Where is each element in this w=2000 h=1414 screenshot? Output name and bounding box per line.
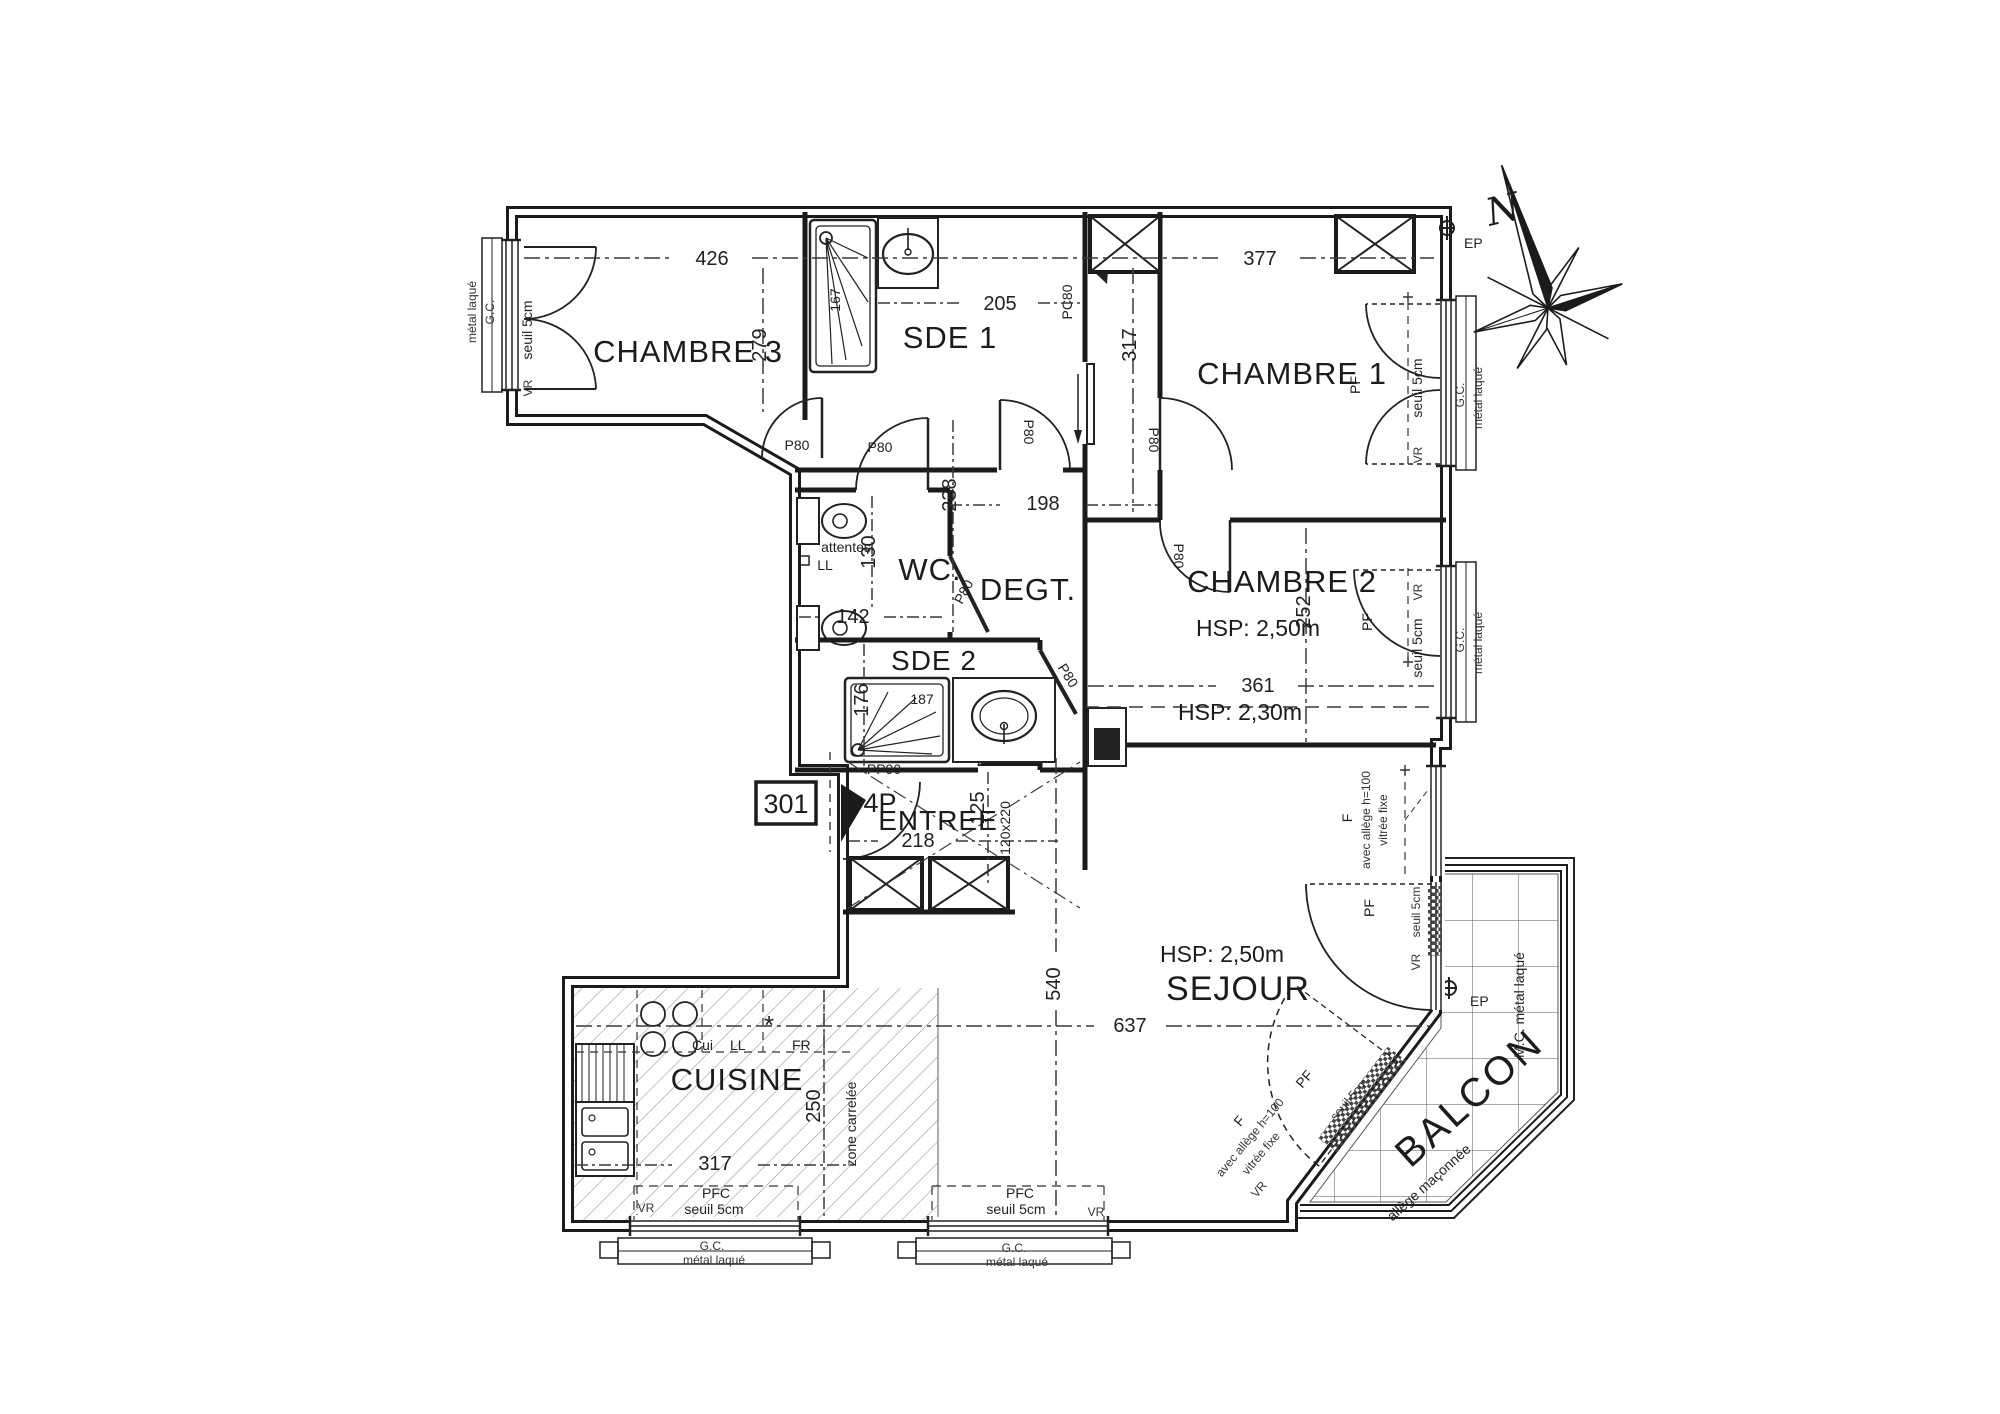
seuil-label: seuil 5cm (986, 1201, 1045, 1217)
metal-laque-label: métal laqué (1471, 367, 1485, 429)
entree-label: ENTREE (878, 805, 998, 836)
p80-label: P80 (868, 439, 893, 455)
degt-label: DEGT. (980, 572, 1076, 607)
wc-label: WC. (898, 552, 961, 587)
sejour-label: SEJOUR (1166, 970, 1310, 1008)
trap-dim-label: 120x220 (997, 801, 1013, 855)
floor-plan-page: BALCON allège maçonnée M.C. métal laqué … (0, 0, 2000, 1414)
gc-label: G.C. (483, 300, 497, 325)
dim-chambre1-w: 377 (1243, 248, 1276, 270)
vr-label: VR (521, 379, 535, 396)
gc-label: G.C. (1453, 383, 1467, 408)
ep-balcony-label: EP (1470, 993, 1489, 1009)
washbasin-sde2 (953, 678, 1055, 762)
closet-1 (850, 858, 922, 910)
vr-label: VR (638, 1201, 655, 1215)
dim-wc-h: 130 (858, 535, 880, 568)
window-sejour-fixed: F avec allège h=100 vitrée fixe (1339, 765, 1446, 876)
sejour-hsp: HSP: 2,50m (1160, 941, 1284, 967)
sde1-label: SDE 1 (903, 320, 998, 355)
dim-chambre3-w: 426 (695, 248, 728, 270)
vr-label: VR (1409, 953, 1423, 970)
shower-dim-label: 167 (827, 288, 843, 312)
kitchen-sink (576, 1044, 634, 1176)
window-chambre3: seuil 5cm VR G.C. métal laqué (465, 238, 596, 396)
vr-label: VR (1411, 583, 1425, 600)
pfc-label: PFC (1006, 1185, 1034, 1201)
pp90-label: PP90 (867, 761, 901, 777)
metal-laque-label: métal laqué (465, 281, 479, 343)
sde2-label: SDE 2 (891, 645, 977, 676)
shower-sde1: 167 (810, 220, 876, 372)
chambre3-label: CHAMBRE 3 (593, 334, 783, 369)
cuisine-label: CUISINE (671, 1062, 804, 1097)
door-chambre1: P80 (1146, 398, 1232, 470)
p80-label: P80 (785, 437, 810, 453)
p80-label: P80 (1021, 420, 1037, 445)
seuil-label: seuil 5cm (684, 1201, 743, 1217)
gc-label: G.C. (1002, 1241, 1027, 1255)
glazing-band (1428, 886, 1442, 956)
apartment-number-box: 301 (756, 782, 816, 824)
gaine-box-2 (1336, 216, 1414, 272)
pfc-label: PFC (702, 1185, 730, 1201)
seuil-label: seuil 5cm (1409, 618, 1425, 677)
gaine-box-1 (1090, 216, 1160, 272)
toilet-wc (797, 498, 866, 544)
floor-plan-canvas: BALCON allège maçonnée M.C. métal laqué … (0, 0, 2000, 1414)
allege-label: avec allège h=100 (1359, 771, 1373, 869)
hob-label: Cui (692, 1037, 713, 1053)
washer-label: LL (730, 1037, 746, 1053)
dim-chambre2-w: 361 (1241, 675, 1274, 697)
metal-laque-label: métal laqué (986, 1255, 1048, 1269)
seuil-label: seuil 5cm (1409, 887, 1423, 938)
dim-sejour-h: 540 (1043, 967, 1065, 1000)
seuil-label: seuil 5cm (519, 300, 535, 359)
dim-sde2-h: 176 (851, 683, 873, 716)
p80-label: P80 (1146, 428, 1162, 453)
pf-label: PF (1359, 613, 1375, 631)
ll-label: LL (817, 557, 833, 573)
metal-laque-label: métal laqué (1471, 612, 1485, 674)
gaine-chambre2 (1088, 708, 1126, 766)
compass-rose: N (1427, 141, 1640, 389)
chambre1-label: CHAMBRE 1 (1197, 356, 1387, 391)
chambre2-hsp-low: HSP: 2,30m (1178, 699, 1302, 725)
metal-laque-label: métal laqué (683, 1253, 745, 1267)
gc-label: G.C. (1453, 628, 1467, 653)
door-wc: P80 P80 (856, 418, 988, 632)
chambre2-hsp: HSP: 2,50m (1196, 615, 1320, 641)
fridge-label: FR (792, 1037, 811, 1053)
vr-label: VR (1411, 446, 1425, 463)
dim-sde1-w: 205 (983, 293, 1016, 315)
dim-degt-w: 198 (1026, 493, 1059, 515)
dim-cuisine-w: 317 (698, 1153, 731, 1175)
closet-2 (930, 858, 1008, 910)
dim-sejour-w: 637 (1113, 1015, 1146, 1037)
window-sejour-pf: PF seuil 5cm VR (1306, 882, 1445, 1010)
door-sde1: P80 (1000, 400, 1070, 470)
pf-label: PF (1292, 1067, 1316, 1091)
vr-label: VR (1248, 1178, 1270, 1200)
apartment-number: 301 (763, 789, 808, 819)
p80-label: P80 (1171, 544, 1187, 569)
dim-wc-w: 142 (836, 606, 869, 628)
gc-label: G.C. (700, 1239, 725, 1253)
dim-degt-h: 238 (939, 478, 961, 511)
star-mark: * (764, 1010, 774, 1040)
f-window-label: F (1339, 814, 1355, 823)
chambre2-label: CHAMBRE 2 (1187, 564, 1377, 599)
dim-cuisine-h: 250 (803, 1089, 825, 1122)
pc80-label: PC80 (1059, 284, 1075, 319)
north-label: N (1480, 184, 1526, 235)
ep-top-label: EP (1464, 235, 1483, 251)
seuil-label: seuil 5cm (1409, 358, 1425, 417)
vr-label: VR (1088, 1205, 1105, 1219)
dim-chambre1-h: 317 (1119, 328, 1141, 361)
balcon-frame-label: M.C. métal laqué (1511, 952, 1527, 1058)
shower-dim-label: 187 (910, 691, 934, 707)
vitree-fixe-label: vitrée fixe (1376, 794, 1390, 846)
f-window-label: F (1230, 1112, 1248, 1129)
door-sde1-pc80: PC80 (1059, 284, 1094, 444)
pf-label: PF (1361, 899, 1377, 917)
washbasin-sde1 (878, 218, 938, 288)
zone-carrelee-label: zone carrelée (843, 1081, 859, 1166)
door-chambre3: P80 (762, 398, 822, 458)
